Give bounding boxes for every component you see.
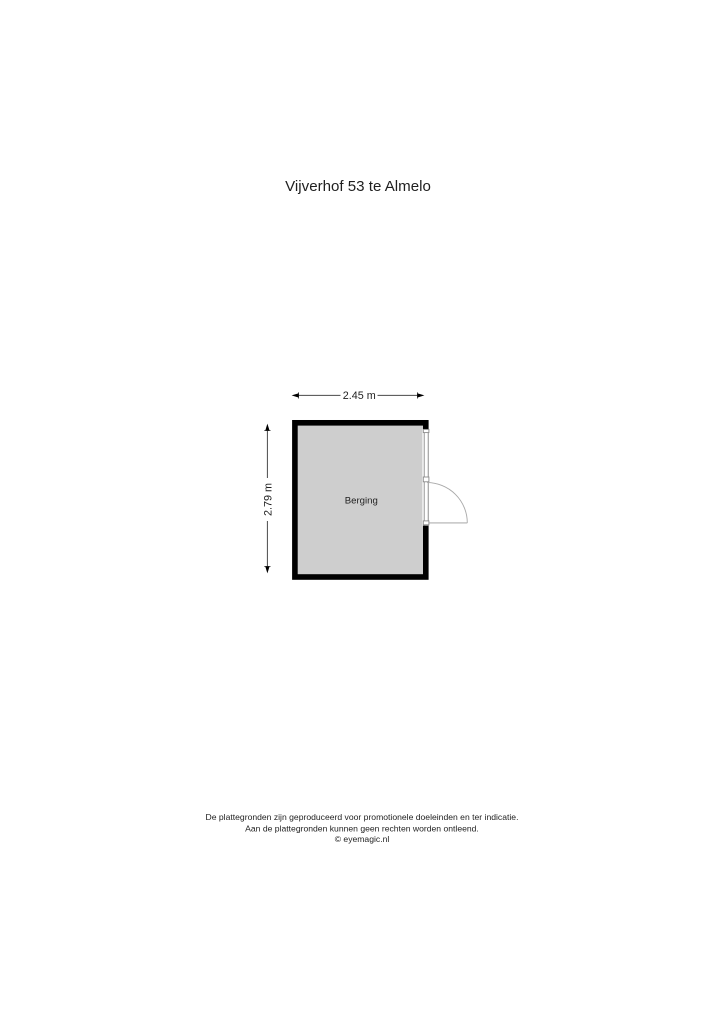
svg-text:Berging: Berging [345, 496, 378, 507]
svg-text:De plattegronden zijn geproduc: De plattegronden zijn geproduceerd voor … [206, 812, 519, 822]
svg-text:2.79 m: 2.79 m [263, 483, 275, 516]
svg-text:Vijverhof 53 te Almelo: Vijverhof 53 te Almelo [285, 178, 431, 195]
svg-text:© eyemagic.nl: © eyemagic.nl [335, 834, 390, 844]
svg-text:Aan de plattegronden kunnen ge: Aan de plattegronden kunnen geen rechten… [245, 824, 479, 834]
svg-text:2.45 m: 2.45 m [343, 390, 376, 402]
